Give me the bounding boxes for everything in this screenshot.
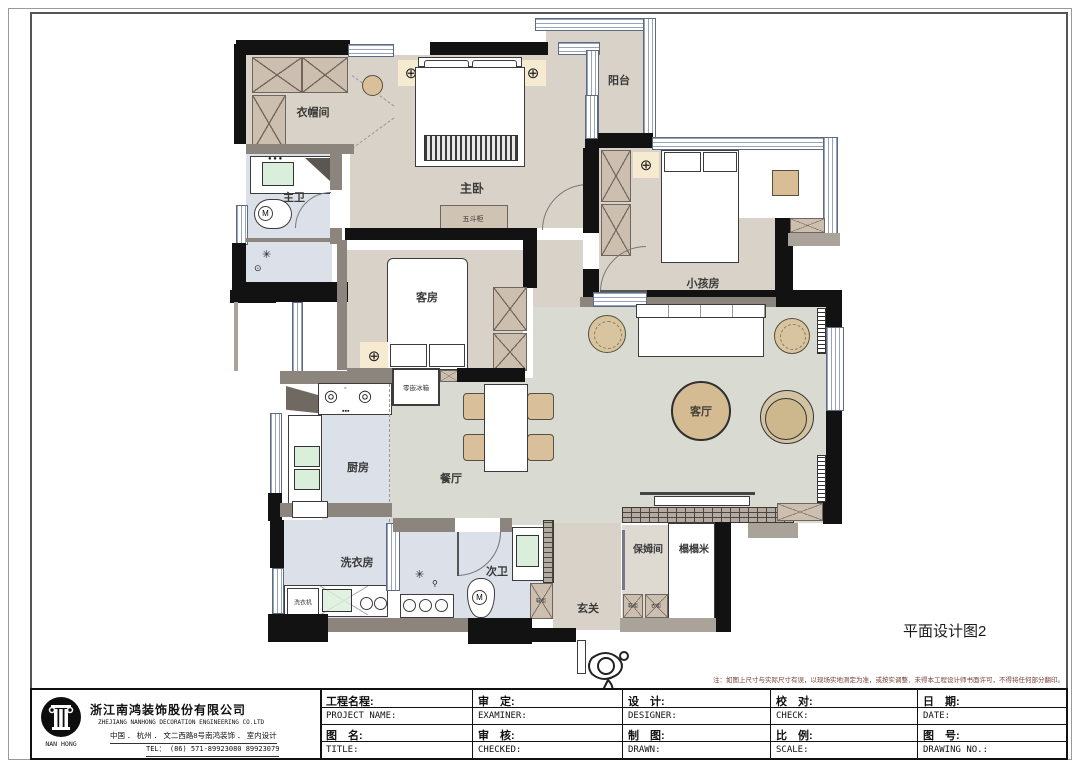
company-address: 中国 ． 杭州 ． 文二西路8号南鸿装饰 ． 室内设计 <box>110 730 277 744</box>
side-table <box>774 318 810 354</box>
title-block: NAN HONG 浙江南鸿装饰股份有限公司 ZHEJIANG NANHONG D… <box>30 688 1068 760</box>
field-checked-en: CHECKED: <box>478 745 521 755</box>
wall <box>468 618 532 644</box>
window <box>272 568 284 614</box>
wall <box>345 228 537 240</box>
company-name: 浙江南鸿装饰股份有限公司 <box>90 701 246 718</box>
sliding-door-line <box>622 530 625 590</box>
foyer-sink <box>516 535 539 567</box>
door-opening <box>455 518 500 532</box>
field-drawing-no-cn: 图 号: <box>923 727 960 743</box>
sofa-back <box>636 304 766 318</box>
field-check-cn: 校 对: <box>776 693 813 709</box>
faucet-icon: ⚲ <box>432 580 438 588</box>
cloak-wardrobe <box>302 57 348 93</box>
cabinet <box>777 503 823 521</box>
sill <box>620 618 716 632</box>
field-designer-cn: 设 计: <box>628 693 665 709</box>
drawing-sheet: ⊕ ⊕ 五斗柜 ● ● ● M ✳ ⊙ <box>0 0 1080 768</box>
knob-dots: ◦ <box>344 385 346 392</box>
window <box>652 137 827 150</box>
field-examiner-cn: 审 定: <box>478 693 515 709</box>
pillow <box>703 152 737 172</box>
dresser-label: 五斗柜 <box>463 214 484 224</box>
room-label-master-bedroom: 主卧 <box>460 180 484 197</box>
basin <box>435 599 448 612</box>
partition-wall <box>500 518 512 532</box>
radiator <box>817 308 826 354</box>
company-logo-text: NAN HONG <box>38 740 84 748</box>
sliding-door <box>585 95 598 139</box>
floor-plan: ⊕ ⊕ 五斗柜 ● ● ● M ✳ ⊙ <box>0 0 1080 660</box>
company-logo <box>40 696 82 738</box>
shoe-cabinet-label: 鞋柜 <box>536 598 546 605</box>
stool <box>362 75 383 96</box>
dining-table <box>484 384 528 472</box>
lounge-chair <box>760 390 814 444</box>
kitchen-divider <box>389 384 390 522</box>
wardrobe-label: 衣柜 <box>651 603 661 610</box>
burner-icon: ◎ <box>324 389 338 405</box>
lounge-chair-seat <box>765 398 807 440</box>
room-label-nanny: 保姆间 <box>633 541 663 556</box>
drain-icon: ⊙ <box>254 264 262 273</box>
field-title-cn: 图 名: <box>326 727 363 743</box>
room-label-cloakroom: 衣帽间 <box>297 104 330 120</box>
wall <box>583 148 599 233</box>
room-label-kitchen: 厨房 <box>347 459 369 475</box>
field-designer-en: DESIGNER: <box>628 711 677 721</box>
field-scale-cn: 比 例: <box>776 727 813 743</box>
room-label-kids-room: 小孩房 <box>687 275 720 291</box>
kitchen-sink <box>294 446 320 467</box>
field-project-en: PROJECT NAME: <box>326 711 396 721</box>
wall <box>270 520 284 568</box>
feature-wall <box>543 520 554 583</box>
washer-label: 洗衣机 <box>294 598 312 607</box>
ceiling-light-icon: ⊕ <box>633 152 659 178</box>
drawing-title: 平面设计图2 <box>903 620 986 641</box>
tv-console <box>654 496 750 506</box>
cabinet <box>440 370 458 382</box>
partition-wall <box>328 618 468 632</box>
fridge-label: 零嵌冰箱 <box>403 382 429 392</box>
ceiling-light-icon: ⊕ <box>360 342 388 370</box>
guest-wardrobe <box>493 287 527 331</box>
shower-icon: ✳ <box>415 570 424 581</box>
wall <box>430 42 548 55</box>
room-label-second-bath: 次卫 <box>486 563 508 579</box>
room-label-tatami: 榻榻米 <box>679 541 709 556</box>
door-leaf <box>457 532 459 576</box>
room-label-foyer: 玄关 <box>577 600 599 616</box>
kids-desk <box>772 170 799 196</box>
basin <box>360 597 373 610</box>
window <box>823 137 838 235</box>
field-title-en: TITLE: <box>326 745 359 755</box>
partition-wall <box>393 518 455 532</box>
room-label-dining: 餐厅 <box>440 470 462 486</box>
kids-wardrobe <box>601 150 631 202</box>
sill <box>234 302 238 371</box>
side-table-ring <box>780 324 806 350</box>
field-drawing-no-en: DRAWING NO.: <box>923 745 988 755</box>
sink <box>262 162 294 186</box>
wall <box>530 628 576 642</box>
basin <box>374 597 387 610</box>
room-label-living-room: 客厅 <box>690 403 712 419</box>
field-date-en: DATE: <box>923 711 950 721</box>
partition-wall <box>246 238 332 242</box>
sofa-seat <box>638 317 764 357</box>
wall <box>268 614 328 642</box>
pillow <box>664 152 701 172</box>
wall <box>715 522 731 632</box>
balcony-window <box>643 18 656 140</box>
blanket <box>424 135 518 161</box>
sill <box>788 233 840 246</box>
field-date-cn: 日 期: <box>923 693 960 709</box>
window <box>826 327 844 411</box>
window-seat <box>790 218 825 233</box>
radiator <box>817 455 826 503</box>
balcony-floor <box>546 29 643 43</box>
kids-wardrobe <box>601 204 631 256</box>
laundry-sink <box>322 589 352 612</box>
window <box>348 44 394 57</box>
vent-dots: ▪▪▪ <box>342 408 349 415</box>
kitchen-sink <box>294 469 320 490</box>
dining-chair <box>527 434 554 461</box>
balcony-window <box>535 18 655 31</box>
field-checked-cn: 审 核: <box>478 727 515 743</box>
balcony-floor2 <box>597 42 643 134</box>
company-tel: TEL： (86) 571-89923080 89923079 <box>146 744 279 757</box>
basin <box>419 599 432 612</box>
side-table <box>588 315 626 353</box>
wall <box>457 368 525 382</box>
laundry-cabinet <box>292 501 328 518</box>
wall <box>236 40 350 55</box>
shower-icon: ✳ <box>262 250 271 261</box>
field-drawn-en: DRAWN: <box>628 745 661 755</box>
pillow <box>390 344 427 367</box>
pillow <box>429 344 465 367</box>
divider <box>320 724 1066 725</box>
dining-chair <box>527 393 554 420</box>
wall <box>823 502 842 524</box>
partition-wall <box>337 240 347 370</box>
guest-wardrobe <box>493 333 527 371</box>
window <box>270 413 282 495</box>
entry-door-leaf <box>577 640 586 674</box>
burner-icon: ◎ <box>358 389 372 405</box>
room-label-balcony: 阳台 <box>608 72 630 88</box>
disclaimer-note: 注：如图上尺寸与实际尺寸有误，以现场实地测定为准，或按实调整．未得本工程设计师书… <box>713 674 1064 684</box>
side-table-ring <box>594 321 622 349</box>
tv-feature-wall <box>622 507 794 523</box>
toilet-seat: M <box>472 590 487 605</box>
window <box>386 523 400 591</box>
niche <box>583 233 599 269</box>
room-label-guest-room: 客房 <box>416 289 438 305</box>
door-opening <box>330 190 342 228</box>
wall <box>234 44 246 144</box>
tatami-mat <box>668 523 715 620</box>
toilet-tank: M <box>258 206 273 221</box>
corridor-floor <box>533 307 578 378</box>
faucet-dots: ● ● ● <box>268 156 282 162</box>
sill <box>748 523 798 538</box>
field-examiner-en: EXAMINER: <box>478 711 527 721</box>
field-scale-en: SCALE: <box>776 745 809 755</box>
field-project-cn: 工程名程: <box>326 693 374 709</box>
basin <box>403 599 416 612</box>
field-drawn-cn: 制 图: <box>628 727 665 743</box>
wall <box>775 290 842 307</box>
shoe-cabinet-label: 鞋柜 <box>628 603 638 610</box>
window <box>292 302 303 373</box>
company-name-en: ZHEJIANG NANHONG DECORATION ENGINEERING … <box>98 719 264 726</box>
field-check-en: CHECK: <box>776 711 809 721</box>
room-label-master-bath: 主卫 <box>283 189 305 205</box>
wall <box>523 240 537 288</box>
cloak-wardrobe <box>252 57 302 93</box>
room-label-laundry: 洗衣房 <box>341 554 374 570</box>
tv <box>640 492 755 495</box>
